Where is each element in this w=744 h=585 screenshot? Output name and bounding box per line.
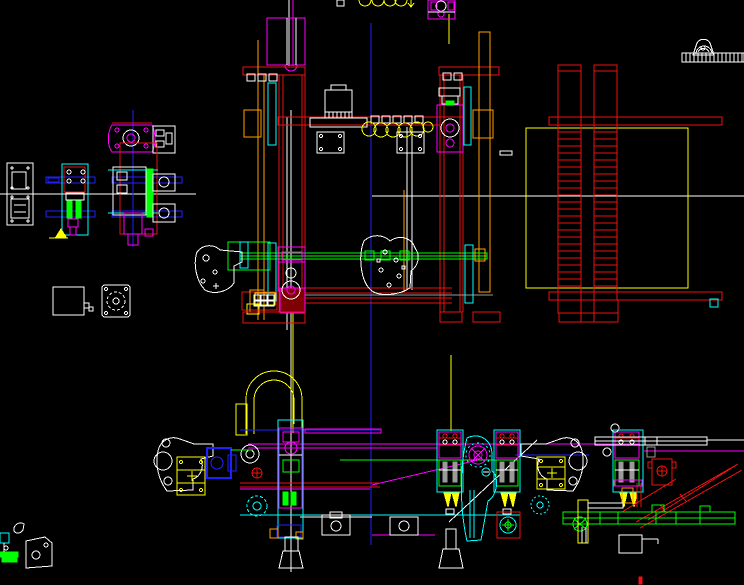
station-bottom-2 — [437, 430, 463, 514]
stands-and-brackets — [279, 512, 658, 584]
cad-drawing-canvas[interactable] — [0, 0, 744, 585]
part-square-plate — [53, 287, 93, 315]
bottom-left-parts — [0, 523, 52, 568]
top-edge-parts — [359, 0, 455, 19]
green-carriage — [563, 505, 735, 531]
tower-structure — [526, 65, 722, 322]
teal-gear-bottom — [531, 496, 549, 514]
green-beam — [228, 242, 487, 270]
small-motor-bottom — [497, 512, 520, 538]
station-bottom-1 — [241, 420, 303, 539]
right-white-bar — [595, 437, 744, 457]
motor-upper-left — [108, 123, 175, 153]
press-right-leg — [439, 32, 500, 322]
bracket-bottom-left — [154, 438, 253, 495]
station-bottom-3 — [494, 430, 520, 514]
press-right-motor — [437, 88, 463, 152]
u-tube — [236, 371, 302, 435]
station-upper-left — [62, 164, 88, 235]
lower-rails-upper-machine — [302, 288, 493, 303]
press-left-leg — [243, 40, 305, 320]
bracket-upper-left — [195, 246, 242, 293]
cad-svg[interactable] — [0, 0, 744, 585]
station-bottom-4 — [603, 424, 643, 507]
press-cylinder-top — [267, 0, 344, 71]
bracket-upper-center — [361, 236, 418, 295]
conveyor-top-right — [682, 39, 744, 62]
part-cam-plate — [102, 285, 130, 317]
gear-center-bottom — [466, 443, 490, 467]
